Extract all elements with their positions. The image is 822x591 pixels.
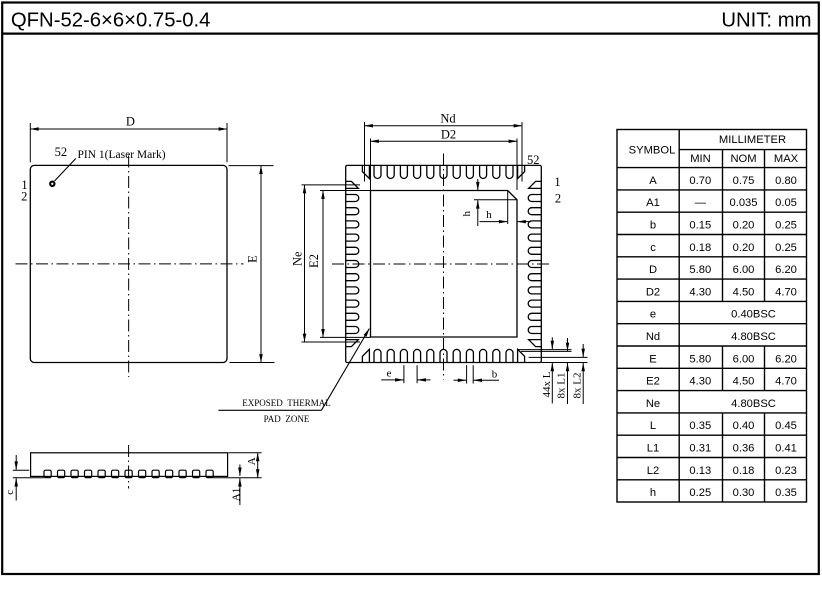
svg-text:EXPOSED THERMAL: EXPOSED THERMAL: [242, 398, 331, 408]
svg-text:8x L2: 8x L2: [572, 373, 584, 399]
svg-text:2: 2: [555, 192, 561, 206]
svg-text:MAX: MAX: [774, 153, 799, 165]
svg-text:h: h: [486, 209, 492, 221]
svg-text:b: b: [650, 220, 656, 232]
svg-text:0.30: 0.30: [733, 487, 755, 499]
svg-text:0.035: 0.035: [730, 197, 758, 209]
svg-text:0.20: 0.20: [733, 242, 755, 254]
svg-text:5.80: 5.80: [689, 353, 711, 365]
svg-text:Nd: Nd: [440, 111, 456, 125]
svg-text:4.30: 4.30: [689, 286, 711, 298]
svg-text:0.70: 0.70: [689, 175, 711, 187]
svg-text:E2: E2: [307, 254, 321, 268]
svg-text:4.80BSC: 4.80BSC: [731, 331, 776, 343]
svg-text:E: E: [649, 353, 656, 365]
svg-text:6.20: 6.20: [775, 264, 797, 276]
svg-text:A: A: [649, 175, 657, 187]
svg-text:Nd: Nd: [646, 331, 660, 343]
svg-text:0.18: 0.18: [733, 465, 755, 477]
svg-text:QFN-52-6×6×0.75-0.4: QFN-52-6×6×0.75-0.4: [11, 9, 211, 31]
svg-text:0.40BSC: 0.40BSC: [731, 309, 776, 321]
svg-text:—: —: [695, 197, 707, 209]
svg-text:A1: A1: [646, 197, 660, 209]
svg-text:0.25: 0.25: [689, 487, 711, 499]
svg-text:6.20: 6.20: [775, 353, 797, 365]
svg-text:c: c: [4, 490, 16, 495]
svg-text:6.00: 6.00: [733, 353, 755, 365]
svg-text:1: 1: [554, 175, 560, 189]
svg-text:D: D: [126, 115, 135, 129]
svg-text:44x L: 44x L: [541, 371, 553, 397]
svg-text:52: 52: [55, 145, 68, 159]
svg-text:A1: A1: [231, 488, 243, 501]
svg-text:0.25: 0.25: [775, 242, 797, 254]
svg-text:PAD ZONE: PAD ZONE: [264, 414, 310, 424]
svg-text:0.31: 0.31: [689, 443, 711, 455]
svg-text:0.23: 0.23: [775, 465, 797, 477]
svg-text:0.40: 0.40: [733, 420, 755, 432]
svg-text:b: b: [492, 368, 498, 380]
svg-text:4.30: 4.30: [689, 376, 711, 388]
svg-text:0.41: 0.41: [775, 443, 797, 455]
svg-text:5.80: 5.80: [689, 264, 711, 276]
svg-text:0.20: 0.20: [733, 220, 755, 232]
svg-text:0.80: 0.80: [775, 175, 797, 187]
svg-text:6.00: 6.00: [733, 264, 755, 276]
svg-text:D2: D2: [441, 128, 456, 142]
svg-text:0.75: 0.75: [733, 175, 755, 187]
svg-text:4.70: 4.70: [775, 286, 797, 298]
svg-text:L: L: [650, 420, 656, 432]
svg-text:D: D: [649, 264, 657, 276]
svg-text:MILLIMETER: MILLIMETER: [719, 134, 786, 146]
svg-text:52: 52: [527, 153, 540, 167]
svg-text:0.36: 0.36: [733, 443, 755, 455]
svg-text:0.18: 0.18: [689, 242, 711, 254]
svg-text:2: 2: [21, 190, 27, 204]
svg-text:0.45: 0.45: [775, 420, 797, 432]
svg-text:0.25: 0.25: [775, 220, 797, 232]
svg-text:0.35: 0.35: [689, 420, 711, 432]
svg-text:0.15: 0.15: [689, 220, 711, 232]
svg-text:SYMBOL: SYMBOL: [629, 145, 676, 157]
svg-text:D2: D2: [646, 286, 660, 298]
svg-text:4.70: 4.70: [775, 376, 797, 388]
svg-text:L2: L2: [647, 465, 659, 477]
svg-text:4.50: 4.50: [733, 286, 755, 298]
svg-text:h: h: [461, 211, 473, 217]
svg-text:L1: L1: [647, 443, 659, 455]
svg-text:NOM: NOM: [730, 153, 756, 165]
svg-text:c: c: [650, 242, 656, 254]
svg-text:0.13: 0.13: [689, 465, 711, 477]
svg-text:4.80BSC: 4.80BSC: [731, 398, 776, 410]
svg-text:E2: E2: [646, 376, 660, 388]
svg-text:MIN: MIN: [690, 153, 711, 165]
svg-text:UNIT: mm: UNIT: mm: [721, 9, 811, 31]
svg-text:0.35: 0.35: [775, 487, 797, 499]
svg-text:PIN 1(Laser Mark): PIN 1(Laser Mark): [78, 149, 166, 161]
svg-text:Ne: Ne: [291, 251, 305, 266]
svg-text:h: h: [650, 487, 656, 499]
svg-text:e: e: [650, 309, 656, 321]
svg-text:0.05: 0.05: [775, 197, 797, 209]
svg-text:E: E: [245, 255, 259, 263]
svg-text:8x L1: 8x L1: [555, 373, 567, 399]
svg-text:Ne: Ne: [646, 398, 660, 410]
svg-text:e: e: [387, 368, 392, 380]
svg-text:4.50: 4.50: [733, 376, 755, 388]
svg-text:A: A: [246, 457, 258, 465]
